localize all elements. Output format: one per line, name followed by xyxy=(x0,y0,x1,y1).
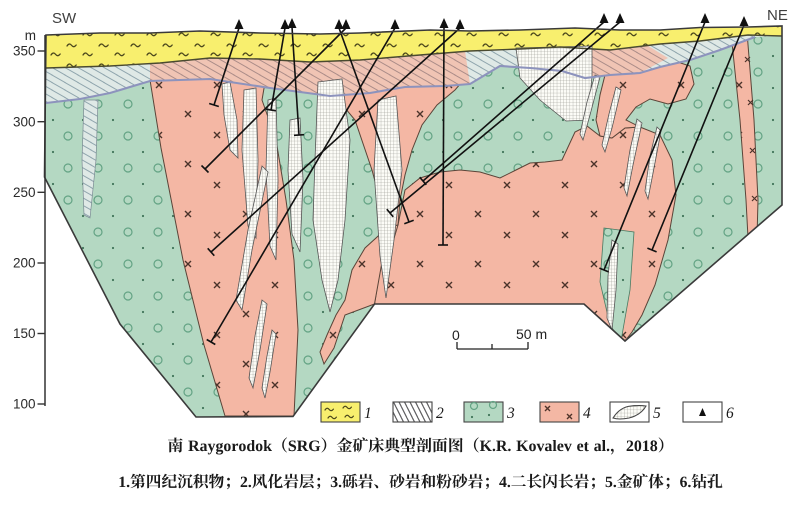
svg-text:m: m xyxy=(25,28,36,43)
svg-text:150: 150 xyxy=(13,326,36,341)
svg-text:350: 350 xyxy=(13,44,36,59)
svg-text:200: 200 xyxy=(13,256,36,271)
svg-text:2: 2 xyxy=(436,405,444,422)
svg-text:50 m: 50 m xyxy=(516,326,547,342)
svg-text:5: 5 xyxy=(653,405,661,422)
svg-text:300: 300 xyxy=(13,114,36,129)
svg-text:4: 4 xyxy=(583,405,591,422)
svg-text:3: 3 xyxy=(506,405,515,422)
svg-text:6: 6 xyxy=(726,405,734,422)
svg-text:0: 0 xyxy=(452,327,460,343)
svg-text:100: 100 xyxy=(13,397,36,412)
svg-text:250: 250 xyxy=(13,185,36,200)
svg-text:1: 1 xyxy=(364,405,372,422)
svg-text:SW: SW xyxy=(52,10,77,27)
svg-text:NE: NE xyxy=(767,7,788,24)
